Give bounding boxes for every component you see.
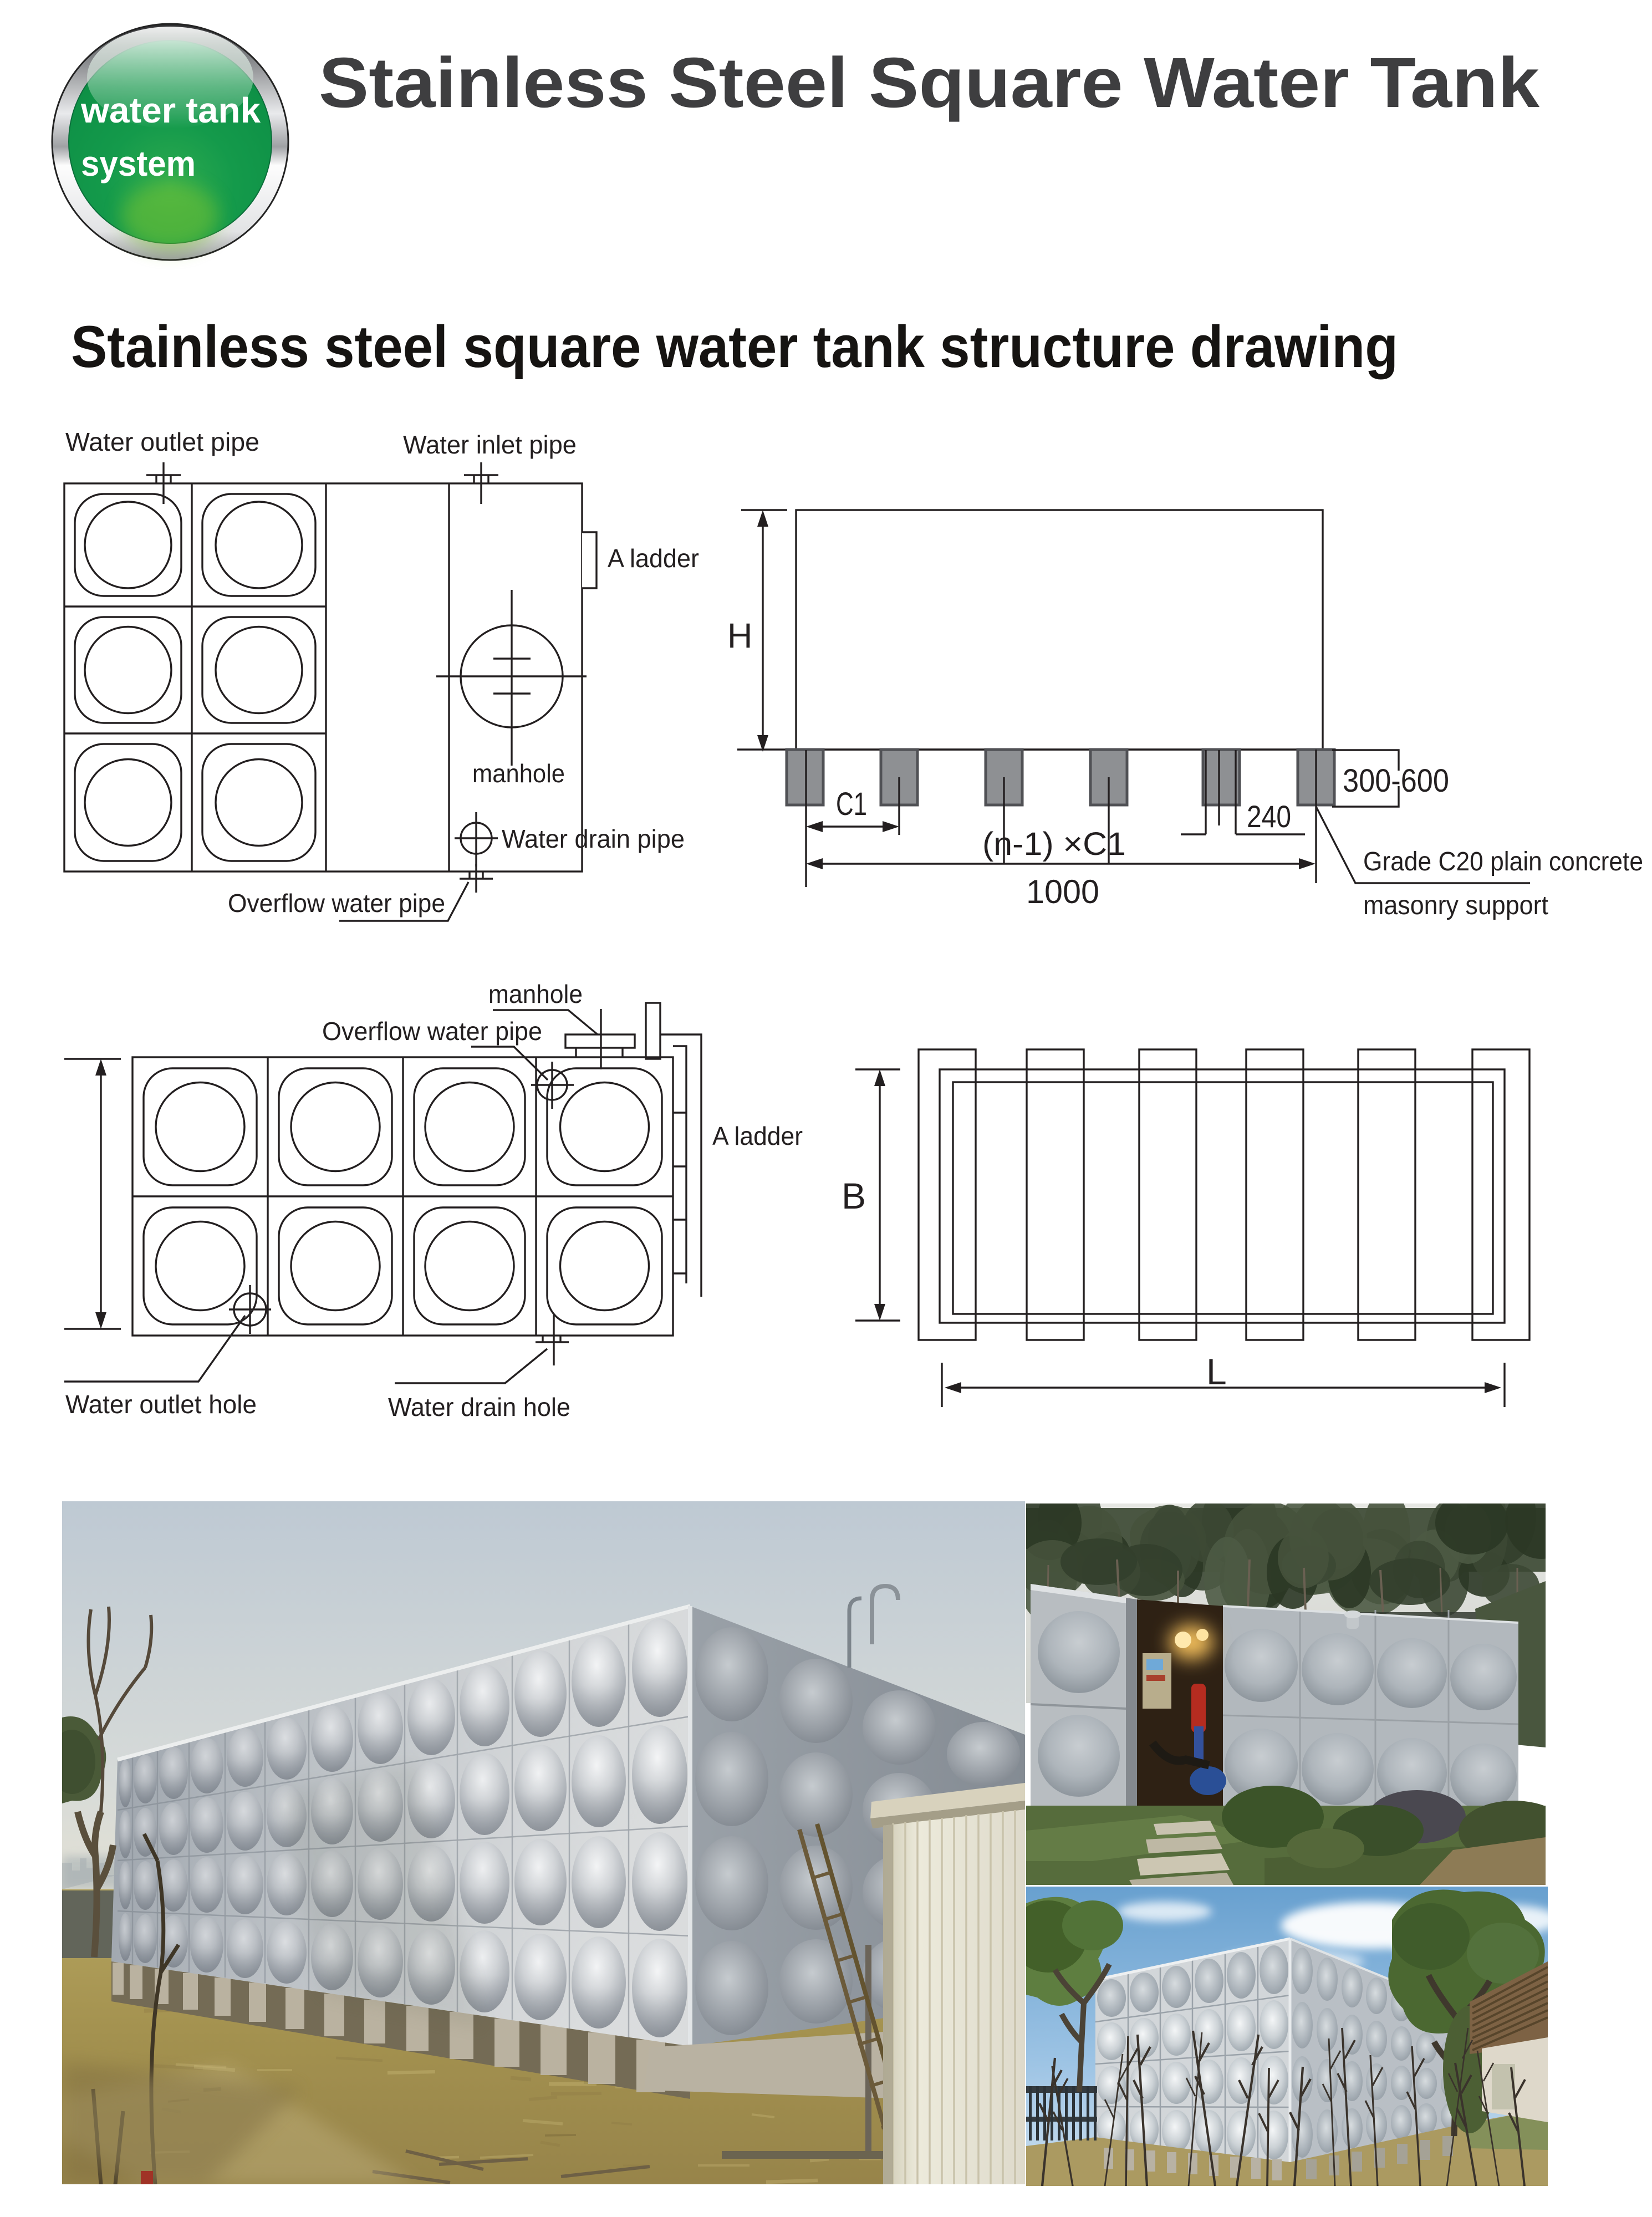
svg-text:manhole: manhole — [488, 980, 583, 1008]
svg-text:C1: C1 — [836, 786, 867, 822]
svg-text:300-600: 300-600 — [1343, 763, 1449, 799]
svg-text:Water outlet pipe: Water outlet pipe — [65, 427, 259, 456]
svg-text:1000: 1000 — [1026, 873, 1099, 910]
svg-text:Grade C20 plain concrete: Grade C20 plain concrete — [1363, 847, 1643, 876]
svg-text:system: system — [81, 144, 196, 184]
svg-text:A ladder: A ladder — [712, 1122, 803, 1150]
svg-text:Water drain pipe: Water drain pipe — [502, 824, 685, 853]
svg-text:B: B — [842, 1175, 866, 1216]
svg-text:Water outlet hole: Water outlet hole — [65, 1390, 257, 1419]
svg-text:masonry support: masonry support — [1363, 891, 1548, 920]
svg-text:Stainless steel square water t: Stainless steel square water tank struct… — [71, 313, 1398, 380]
svg-text:(n-1) ×C1: (n-1) ×C1 — [982, 826, 1126, 862]
svg-text:water tank: water tank — [80, 90, 261, 130]
svg-text:Stainless Steel Square Water T: Stainless Steel Square Water Tank — [319, 43, 1540, 123]
svg-text:Overflow water pipe: Overflow water pipe — [322, 1017, 542, 1046]
svg-text:Water drain hole: Water drain hole — [388, 1393, 570, 1421]
svg-text:L: L — [1206, 1351, 1227, 1392]
svg-text:Overflow water pipe: Overflow water pipe — [228, 889, 445, 918]
svg-text:A ladder: A ladder — [608, 544, 699, 573]
svg-text:H: H — [727, 616, 753, 655]
svg-text:Water inlet pipe: Water inlet pipe — [403, 430, 577, 459]
svg-text:manhole: manhole — [472, 759, 565, 788]
svg-text:240: 240 — [1247, 799, 1291, 834]
